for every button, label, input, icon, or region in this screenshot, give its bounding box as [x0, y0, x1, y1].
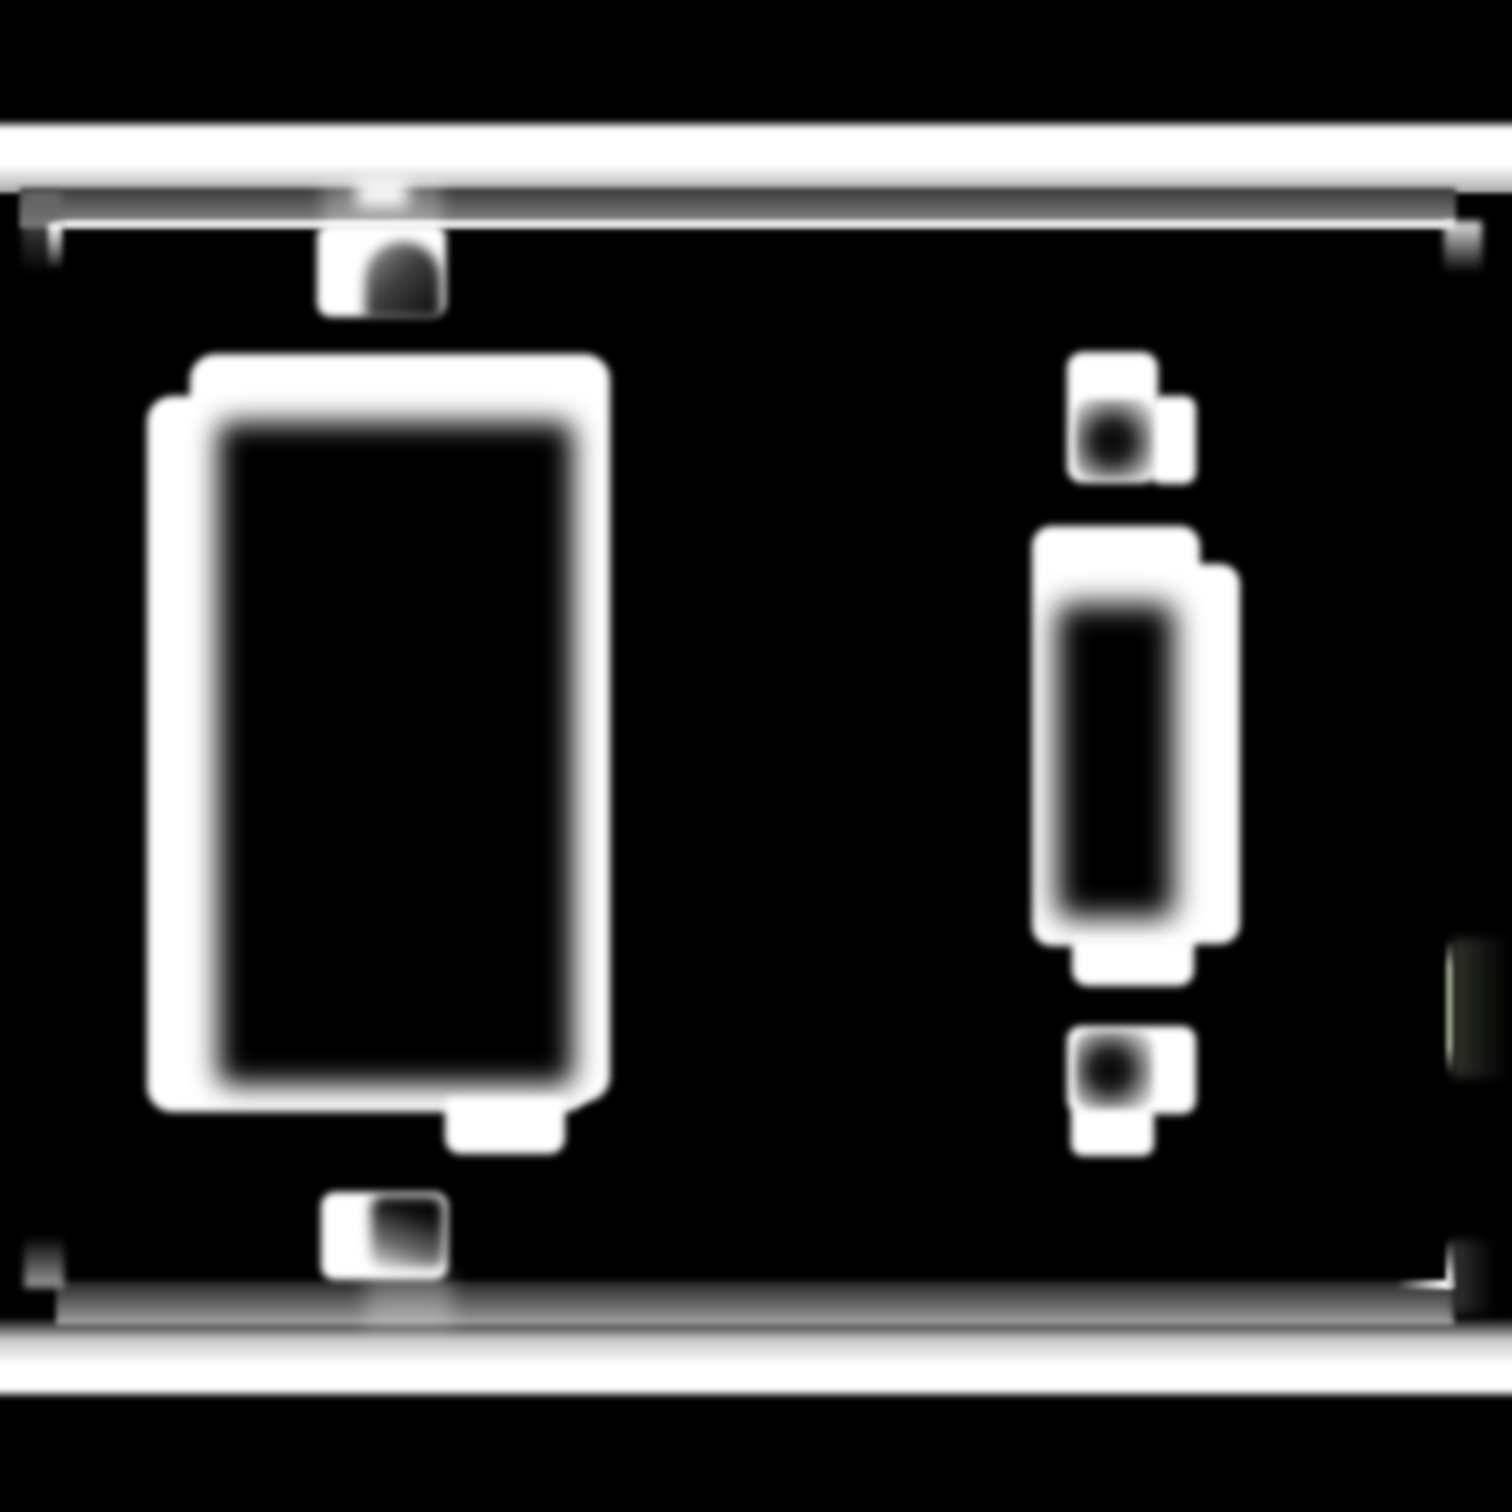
rocker-opening: [218, 422, 573, 1085]
bottom-plate-face-band: [56, 1281, 1454, 1325]
rocker-bottom-screw-streak: [366, 1274, 452, 1328]
bottom-right-rim-glint: [1396, 1280, 1454, 1289]
rocker-bottom-screw-plate: [321, 1192, 448, 1280]
top-left-corner-glint: [48, 223, 62, 269]
wall-plate-mask-image: [0, 0, 1512, 1512]
rocker-bottom-screw-shadow: [371, 1196, 444, 1268]
top-plate-rim-highlight: [54, 220, 1454, 228]
toggle-top-screw-shadow: [1075, 399, 1153, 479]
rocker-frame-outer-lower: [147, 396, 590, 1112]
toggle-bottom-tab: [1072, 938, 1194, 986]
top-left-plate-corner-leg: [22, 192, 62, 274]
top-right-plate-corner-leg: [1444, 221, 1482, 273]
rocker-top-screw-shadow: [365, 242, 441, 319]
toggle-lever-opening: [1057, 604, 1174, 918]
toggle-frame-outer-lobe: [1154, 564, 1240, 944]
toggle-top-screw-plate: [1067, 352, 1158, 483]
toggle-bottom-screw-plate-lobe: [1071, 1104, 1154, 1156]
bottom-right-corner-glint: [1446, 1238, 1455, 1288]
top-plate-face-band: [20, 188, 1456, 228]
bottom-right-corner-haze: [1452, 1240, 1494, 1314]
bottom-plate-edge-bar: [0, 1317, 1512, 1399]
top-plate-edge-bar: [0, 119, 1512, 193]
rocker-bottom-tab: [445, 1098, 565, 1154]
rocker-top-screw-plate: [317, 224, 446, 317]
toggle-frame-outer: [1032, 526, 1200, 946]
toggle-bottom-screw-plate: [1067, 1026, 1196, 1114]
right-edge-groove-line: [1446, 940, 1453, 1074]
rocker-frame-outer-upper: [190, 354, 610, 1102]
toggle-top-screw-plate-lobe: [1150, 396, 1196, 484]
toggle-bottom-screw-shadow: [1075, 1031, 1153, 1109]
bottom-left-plate-corner-leg: [24, 1236, 64, 1288]
right-edge-groove-haze: [1452, 938, 1510, 1078]
rocker-top-screw-streak: [322, 180, 442, 232]
rocker-top-screw-glint: [356, 178, 408, 208]
